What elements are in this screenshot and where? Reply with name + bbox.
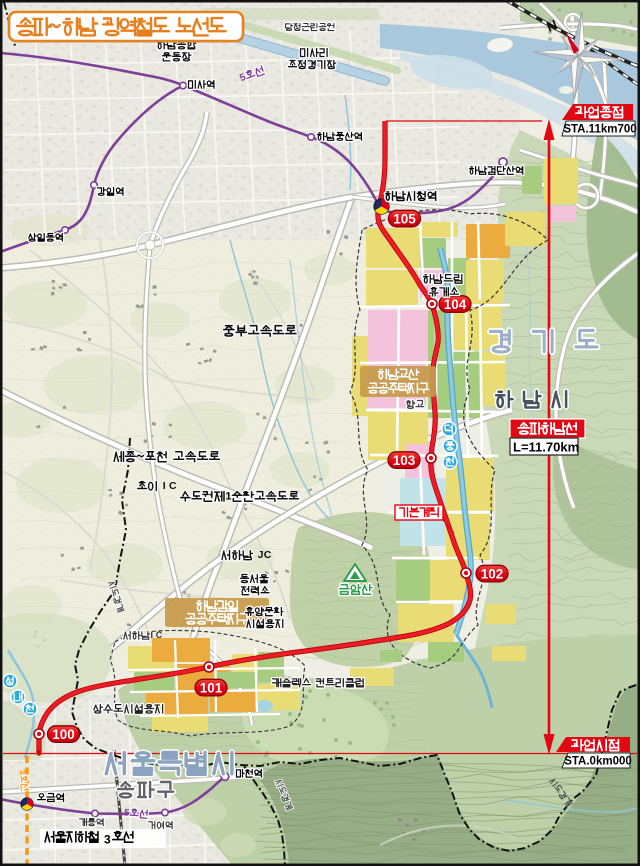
svg-text:101: 101 bbox=[200, 680, 223, 695]
svg-text:C: C bbox=[156, 630, 163, 640]
svg-text:I: I bbox=[163, 480, 166, 492]
svg-text:I: I bbox=[151, 630, 153, 640]
svg-text:105: 105 bbox=[393, 211, 416, 226]
svg-text:100: 100 bbox=[52, 727, 75, 742]
svg-text:102: 102 bbox=[481, 566, 504, 581]
svg-text:C: C bbox=[169, 480, 177, 492]
svg-text:104: 104 bbox=[444, 297, 467, 312]
svg-text:103: 103 bbox=[393, 453, 416, 468]
svg-text:J: J bbox=[258, 549, 264, 561]
svg-text:L=11.70km: L=11.70km bbox=[513, 440, 579, 455]
svg-text:C: C bbox=[264, 549, 272, 561]
svg-text:STA.11km700: STA.11km700 bbox=[563, 124, 636, 136]
svg-text:STA.0km000: STA.0km000 bbox=[564, 756, 632, 768]
svg-text:1: 1 bbox=[225, 491, 231, 503]
svg-text:3: 3 bbox=[104, 833, 111, 847]
